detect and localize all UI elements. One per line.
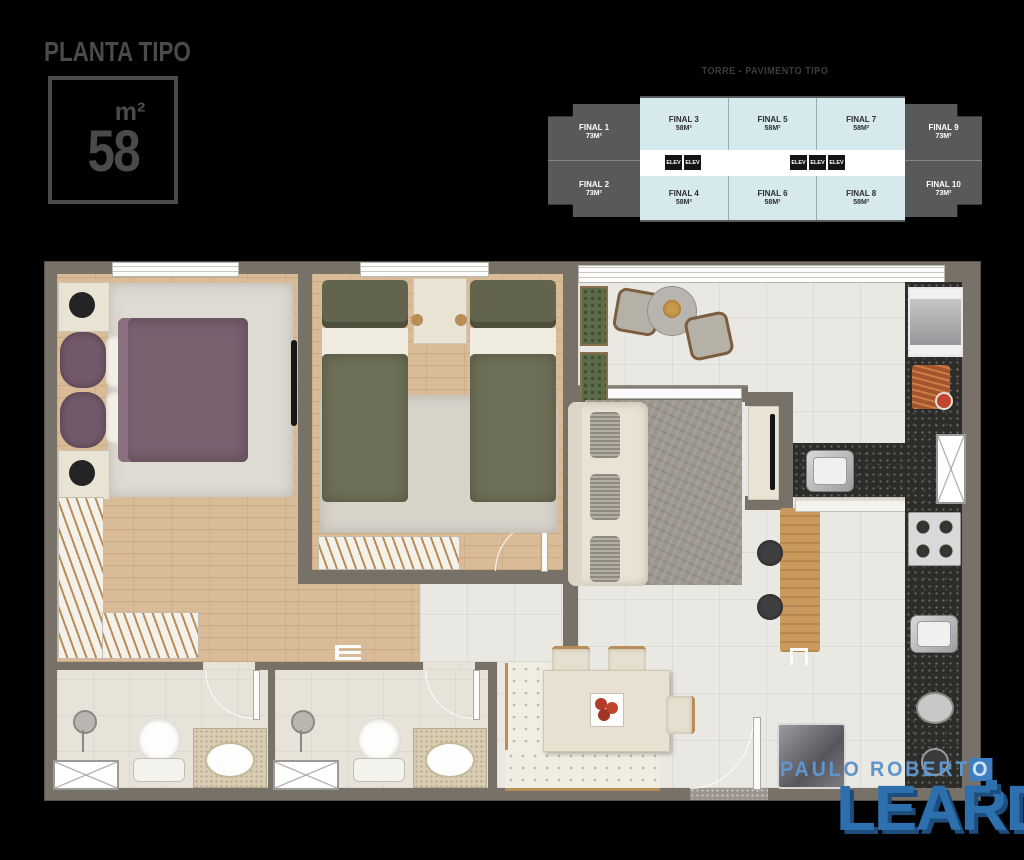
apartment-floor-plan: [45, 262, 980, 800]
keyplan-corridor: ELEV ELEV ELEV ELEV ELEV: [640, 150, 905, 176]
duct-shaft: [936, 434, 966, 504]
sliding-door-symbol: [335, 645, 361, 660]
bolster-pillow: [60, 392, 106, 448]
keyplan-center-section: FINAL 3 58M² FINAL 5 58M² FINAL 7 58M² E…: [640, 96, 905, 222]
shower-head: [73, 710, 97, 734]
fridge: [908, 287, 963, 357]
elevator-box: ELEV: [828, 155, 845, 170]
keyplan-right-wing: FINAL 9 73M² FINAL 10 73M²: [905, 104, 982, 217]
bathroom1-door-leaf: [253, 670, 260, 720]
keyplan-unit-final-2: FINAL 2 73M²: [548, 161, 640, 217]
floor-plan-page: PLANTA TIPO m² 58 TORRE - PAVIMENTO TIPO…: [0, 0, 1024, 860]
shaft-box: [53, 760, 119, 790]
single-bed-right-sheet: [470, 328, 556, 356]
keyplan-unit-final-9: FINAL 9 73M²: [905, 104, 982, 161]
sofa-pillow: [590, 412, 620, 458]
lamp: [69, 460, 95, 486]
tv-wall: [779, 392, 793, 510]
cooktop: [908, 512, 961, 566]
shower-hose: [300, 730, 302, 752]
shaft-box: [273, 760, 339, 790]
master-closet-horizontal: [102, 612, 199, 659]
single-bed-left-sheet: [322, 328, 408, 356]
sofa-pillow: [590, 536, 620, 582]
drying-rack: [916, 692, 954, 724]
balcony-chair: [683, 310, 735, 362]
elevator-box: ELEV: [684, 155, 701, 170]
dining-bench-bottom: [505, 750, 660, 791]
bolster-pillow: [60, 332, 106, 388]
keyplan-left-wing: FINAL 1 73M² FINAL 2 73M²: [548, 104, 640, 217]
toilet: [137, 718, 181, 762]
bar-counter: [780, 508, 820, 652]
bedroom2-south-wall: [312, 570, 495, 584]
toilet: [357, 718, 401, 762]
keyplan-unit-final-5: FINAL 5 58M²: [729, 98, 818, 150]
sink-oval: [205, 742, 255, 778]
kitchen-sink-basin: [813, 457, 847, 485]
balcony-sliding-door: [590, 388, 742, 399]
sink-oval: [425, 742, 475, 778]
bedside-table: [413, 278, 467, 344]
elevator-box: ELEV: [809, 155, 826, 170]
elevator-box: ELEV: [665, 155, 682, 170]
keyplan-unit-final-3: FINAL 3 58M²: [640, 98, 729, 150]
master-bed-duvet: [118, 318, 248, 462]
planter: [580, 286, 608, 346]
elevator-box: ELEV: [790, 155, 807, 170]
single-bed-left-pillow: [322, 280, 408, 328]
pendant-lamp: [455, 314, 467, 326]
toilet-tank: [353, 758, 405, 782]
keyplan-unit-final-8: FINAL 8 58M²: [817, 176, 905, 220]
keyplan-unit-final-7: FINAL 7 58M²: [817, 98, 905, 150]
bedroom2-south-wall: [545, 570, 563, 584]
decor-bowl: [935, 392, 953, 410]
bedroom2-window: [360, 262, 489, 277]
single-bed-right-duvet: [470, 354, 556, 502]
single-bed-right-pillow: [470, 280, 556, 328]
table-centerpiece: [663, 300, 681, 318]
lamp: [69, 292, 95, 318]
master-closet-vertical: [58, 497, 104, 659]
bedroom2-wardrobe: [318, 536, 460, 570]
keyplan-unit-final-10: FINAL 10 73M²: [905, 161, 982, 217]
keyplan-unit-final-4: FINAL 4 58M²: [640, 176, 729, 220]
fruit: [598, 709, 610, 721]
pendant-lamp: [411, 314, 423, 326]
bathroom2-door-gap: [423, 662, 475, 670]
corridor-floor: [420, 584, 563, 662]
tower-keyplan: TORRE - PAVIMENTO TIPO FINAL 1 73M² FINA…: [545, 60, 985, 232]
page-title: PLANTA TIPO: [44, 36, 191, 68]
area-value: 58: [87, 124, 138, 179]
balcony-opening: [578, 265, 945, 283]
bar-stool: [757, 540, 783, 566]
tv-living: [770, 414, 775, 490]
bathroom1-door-gap: [203, 662, 255, 670]
door-frame-symbol: [790, 648, 808, 665]
keyplan-unit-final-6: FINAL 6 58M²: [729, 176, 818, 220]
sofa-pillow: [590, 474, 620, 520]
keyplan-title: TORRE - PAVIMENTO TIPO: [567, 66, 963, 77]
logo-i-dot: [986, 780, 997, 790]
area-badge: m² 58: [48, 76, 178, 204]
master-window: [112, 262, 239, 277]
shower-head: [291, 710, 315, 734]
bar-stool: [757, 594, 783, 620]
single-bed-left-duvet: [322, 354, 408, 502]
kitchen-sink-2-basin: [917, 621, 951, 647]
keyplan-unit-final-1: FINAL 1 73M²: [548, 104, 640, 161]
shower-hose: [82, 730, 84, 752]
bathroom2-door-leaf: [473, 670, 480, 720]
toilet-tank: [133, 758, 185, 782]
tv-master: [291, 340, 297, 426]
entry-door-leaf: [753, 717, 761, 790]
